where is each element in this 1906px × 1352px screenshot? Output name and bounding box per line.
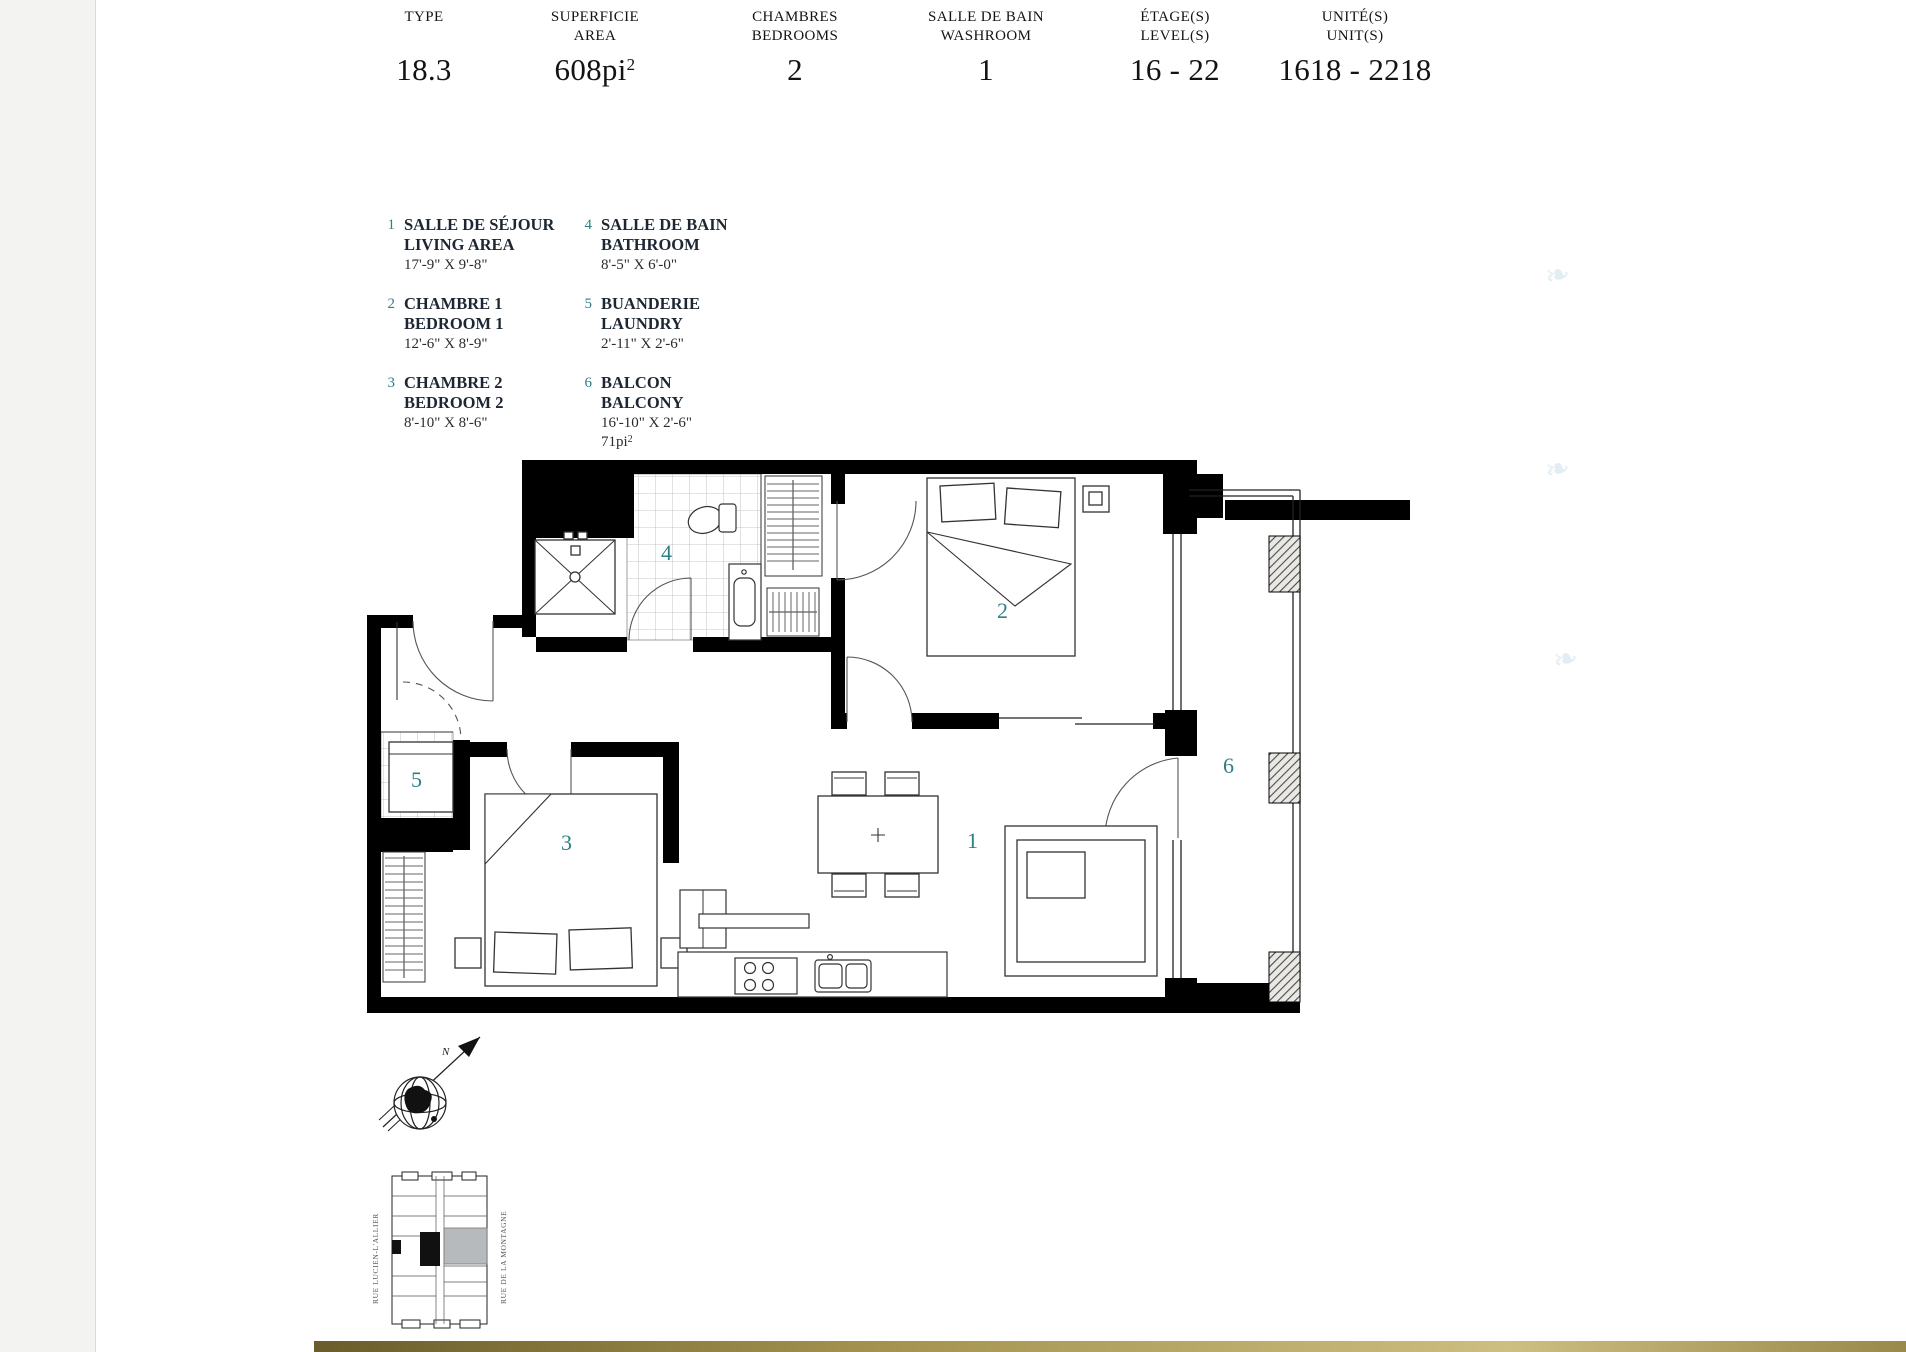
legend-item-living: 1 SALLE DE SÉJOURLIVING AREA 17'-9" X 9'…	[383, 215, 554, 274]
north-label: N	[441, 1046, 450, 1058]
room-label-bedroom2: 3	[561, 830, 572, 855]
legend-number: 5	[580, 294, 592, 353]
shower	[535, 532, 615, 614]
legend-dimensions: 12'-6" X 8'-9"	[404, 336, 503, 353]
spec-label: UNITÉ(S)UNIT(S)	[1240, 8, 1470, 46]
building-core	[420, 1232, 440, 1266]
legend-name: SALLE DE BAINBATHROOM	[601, 215, 728, 255]
legend-number: 3	[383, 373, 395, 432]
legend-dimensions: 2'-11" X 2'-6"	[601, 336, 700, 353]
room-label-laundry: 5	[411, 767, 422, 792]
room-label-balcony: 6	[1223, 753, 1234, 778]
legend-item-bedroom1: 2 CHAMBRE 1BEDROOM 1 12'-6" X 8'-9"	[383, 294, 503, 353]
bedroom1-furniture	[927, 478, 1109, 656]
legend-item-bedroom2: 3 CHAMBRE 2BEDROOM 2 8'-10" X 8'-6"	[383, 373, 503, 432]
room-label-bedroom1: 2	[997, 598, 1008, 623]
street-label-left: RUE LUCIEN-L'ALLIER	[371, 1213, 380, 1304]
page-left-margin	[0, 0, 96, 1352]
room-label-living: 1	[967, 828, 978, 853]
highlighted-unit	[444, 1228, 487, 1264]
watermark-leaf-icon: ❧	[1542, 256, 1574, 295]
building-key-plan: RUE LUCIEN-L'ALLIER RUE DE LA MONTAGNE	[362, 1170, 527, 1332]
street-label-right: RUE DE LA MONTAGNE	[499, 1211, 508, 1304]
spec-units: UNITÉ(S)UNIT(S) 1618 - 2218	[1240, 8, 1470, 88]
spec-value: 608pi2	[480, 52, 710, 88]
legend-dimensions: 16'-10" X 2'-6"	[601, 415, 692, 432]
legend-number: 1	[383, 215, 395, 274]
legend-number: 4	[580, 215, 592, 274]
dining-set	[818, 772, 938, 897]
kitchen	[678, 890, 947, 997]
legend-item-bathroom: 4 SALLE DE BAINBATHROOM 8'-5" X 6'-0"	[580, 215, 728, 274]
legend-name: CHAMBRE 2BEDROOM 2	[404, 373, 503, 413]
floor-plan: 1 2 3 4 5 6	[367, 460, 1410, 1013]
legend-dimensions: 17'-9" X 9'-8"	[404, 257, 554, 274]
legend-name: BUANDERIELAUNDRY	[601, 294, 700, 334]
watermark-leaf-icon: ❧	[1542, 450, 1574, 489]
legend-dimensions: 8'-5" X 6'-0"	[601, 257, 728, 274]
sofa	[1005, 826, 1157, 976]
bottom-gold-rule	[314, 1341, 1906, 1352]
bedroom2-closet	[383, 852, 425, 982]
compass-rose: N	[368, 1025, 498, 1145]
balcony-columns	[1269, 536, 1300, 1002]
entry-closet	[765, 476, 822, 636]
spec-area: SUPERFICIEAREA 608pi2	[480, 8, 710, 88]
watermark-leaf-icon: ❧	[1550, 640, 1582, 679]
legend-number: 2	[383, 294, 395, 353]
legend-number: 6	[580, 373, 592, 451]
bathroom-vanity	[729, 564, 761, 640]
legend-name: SALLE DE SÉJOURLIVING AREA	[404, 215, 554, 255]
spec-value: 1618 - 2218	[1240, 52, 1470, 88]
legend-name: BALCONBALCONY	[601, 373, 692, 413]
bedroom2-furniture	[455, 794, 687, 986]
room-label-bathroom: 4	[661, 540, 672, 565]
legend-dimensions: 8'-10" X 8'-6"	[404, 415, 503, 432]
legend-area: 71pi2	[601, 434, 692, 451]
spec-label: SUPERFICIEAREA	[480, 8, 710, 46]
legend-item-balcony: 6 BALCONBALCONY 16'-10" X 2'-6" 71pi2	[580, 373, 692, 451]
legend-item-laundry: 5 BUANDERIELAUNDRY 2'-11" X 2'-6"	[580, 294, 700, 353]
legend-name: CHAMBRE 1BEDROOM 1	[404, 294, 503, 334]
